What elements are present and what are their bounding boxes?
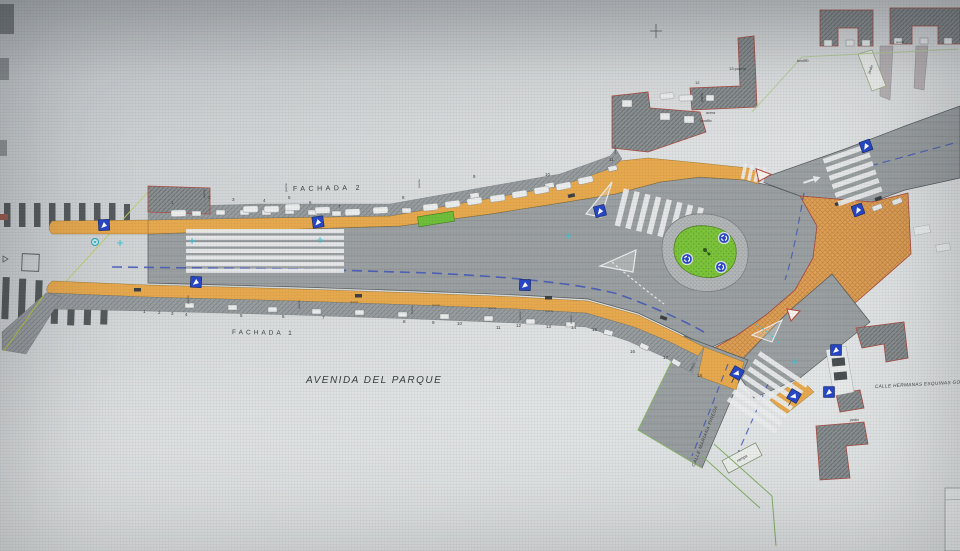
curb-fragment <box>913 225 930 236</box>
pedestrian-sign-icon <box>519 279 530 290</box>
avenue-title: AVENIDA DEL PARQUE <box>305 375 442 386</box>
pedestrian-sign-icon <box>98 219 110 231</box>
svg-text:17: 17 <box>663 355 669 360</box>
puerta-label: puerta <box>350 300 358 304</box>
puerta-label: puerta <box>417 179 421 188</box>
puerta-label: puerta <box>896 40 904 44</box>
num12-label: 12 <box>695 80 700 85</box>
svg-text:10: 10 <box>545 172 551 177</box>
puerta-label: puerta <box>297 300 301 309</box>
curb-fragment <box>936 243 951 252</box>
puerta-label: puerta <box>569 315 573 324</box>
roundabout <box>662 214 748 292</box>
roundabout-sign-icon <box>719 233 730 244</box>
titleblock-partial <box>945 488 960 551</box>
plan-square-symbol <box>22 254 40 272</box>
tick-mark <box>650 24 662 38</box>
puerta-label: puerta <box>613 145 617 154</box>
photo-edge-artifacts <box>0 4 14 220</box>
facade1-title: FACHADA 1 <box>232 329 295 337</box>
pedestrian-sign-icon <box>190 276 202 288</box>
svg-text:5: 5 <box>288 195 291 200</box>
driveway-1 <box>880 46 893 100</box>
puerta-label: puerta <box>186 295 190 304</box>
svg-text:16: 16 <box>630 349 636 354</box>
svg-text:9: 9 <box>473 174 476 179</box>
pedestrian-sign-icon <box>831 345 842 356</box>
driveway-2 <box>914 46 928 90</box>
roundabout-sign-icon <box>716 262 727 273</box>
svg-text:13: 13 <box>546 324 552 329</box>
bordillo-label-1: bordillo <box>797 59 809 63</box>
puerta-label: puerta <box>202 189 206 198</box>
street-hermanas-label: CALLE HERMANAS ESQUINAS GO <box>875 380 960 389</box>
svg-text:10: 10 <box>457 321 463 326</box>
svg-text:3: 3 <box>232 197 235 202</box>
pedestrian-sign-icon <box>824 387 835 398</box>
curb-line-diagonal <box>58 192 148 290</box>
svg-text:14: 14 <box>571 325 577 330</box>
puerta-label: puerta <box>488 306 496 310</box>
svg-text:12: 12 <box>516 323 522 328</box>
svg-text:4: 4 <box>185 312 188 317</box>
svg-text:2: 2 <box>208 195 211 200</box>
svg-text:11: 11 <box>496 325 501 330</box>
building-se-1 <box>856 322 908 362</box>
svg-text:8: 8 <box>402 195 405 200</box>
building-se-3 <box>816 422 868 480</box>
puerta-label: puerta <box>284 183 288 192</box>
puerta-label: puerta <box>432 303 440 307</box>
svg-text:11: 11 <box>609 157 614 162</box>
puerta-label: puerta <box>410 305 414 314</box>
puerta-label: puerta <box>518 311 522 320</box>
puerta-label: puerta <box>700 93 704 102</box>
svg-text:18: 18 <box>697 373 703 378</box>
acera-label: acera <box>706 111 715 115</box>
jardin-label-2: jardin <box>849 418 859 422</box>
bordillo-label-2: bordillo <box>700 119 712 123</box>
facade2-title: FACHADA 2 <box>293 185 363 193</box>
svg-text:15: 15 <box>592 327 598 332</box>
svg-text:4: 4 <box>263 198 266 203</box>
puerta13-label: 13 puerta <box>729 66 747 71</box>
roundabout-sign-icon <box>682 254 693 265</box>
svg-text:9: 9 <box>432 320 435 325</box>
pedestrian-sign-icon <box>312 216 324 228</box>
arrow-symbol <box>3 256 8 262</box>
puerta-label: puerta <box>545 309 553 313</box>
svg-text:8: 8 <box>403 319 406 324</box>
pedestrian-sign-icon <box>593 204 606 217</box>
street-plan-drawing: rampa FACHADA 2 FACHADA 1 AVENIDA DEL PA… <box>0 0 960 551</box>
screen-photo: rampa FACHADA 2 FACHADA 1 AVENIDA DEL PA… <box>0 0 960 551</box>
